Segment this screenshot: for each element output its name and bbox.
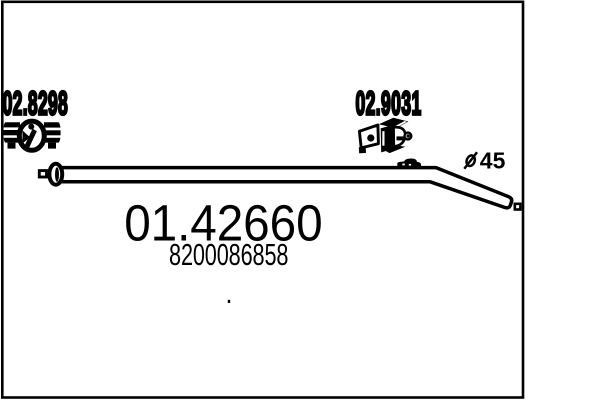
svg-text:45: 45: [480, 147, 506, 173]
svg-text:02.8298: 02.8298: [3, 85, 68, 122]
svg-text:02.9031: 02.9031: [355, 85, 421, 122]
svg-text:8200086858: 8200086858: [169, 237, 288, 272]
